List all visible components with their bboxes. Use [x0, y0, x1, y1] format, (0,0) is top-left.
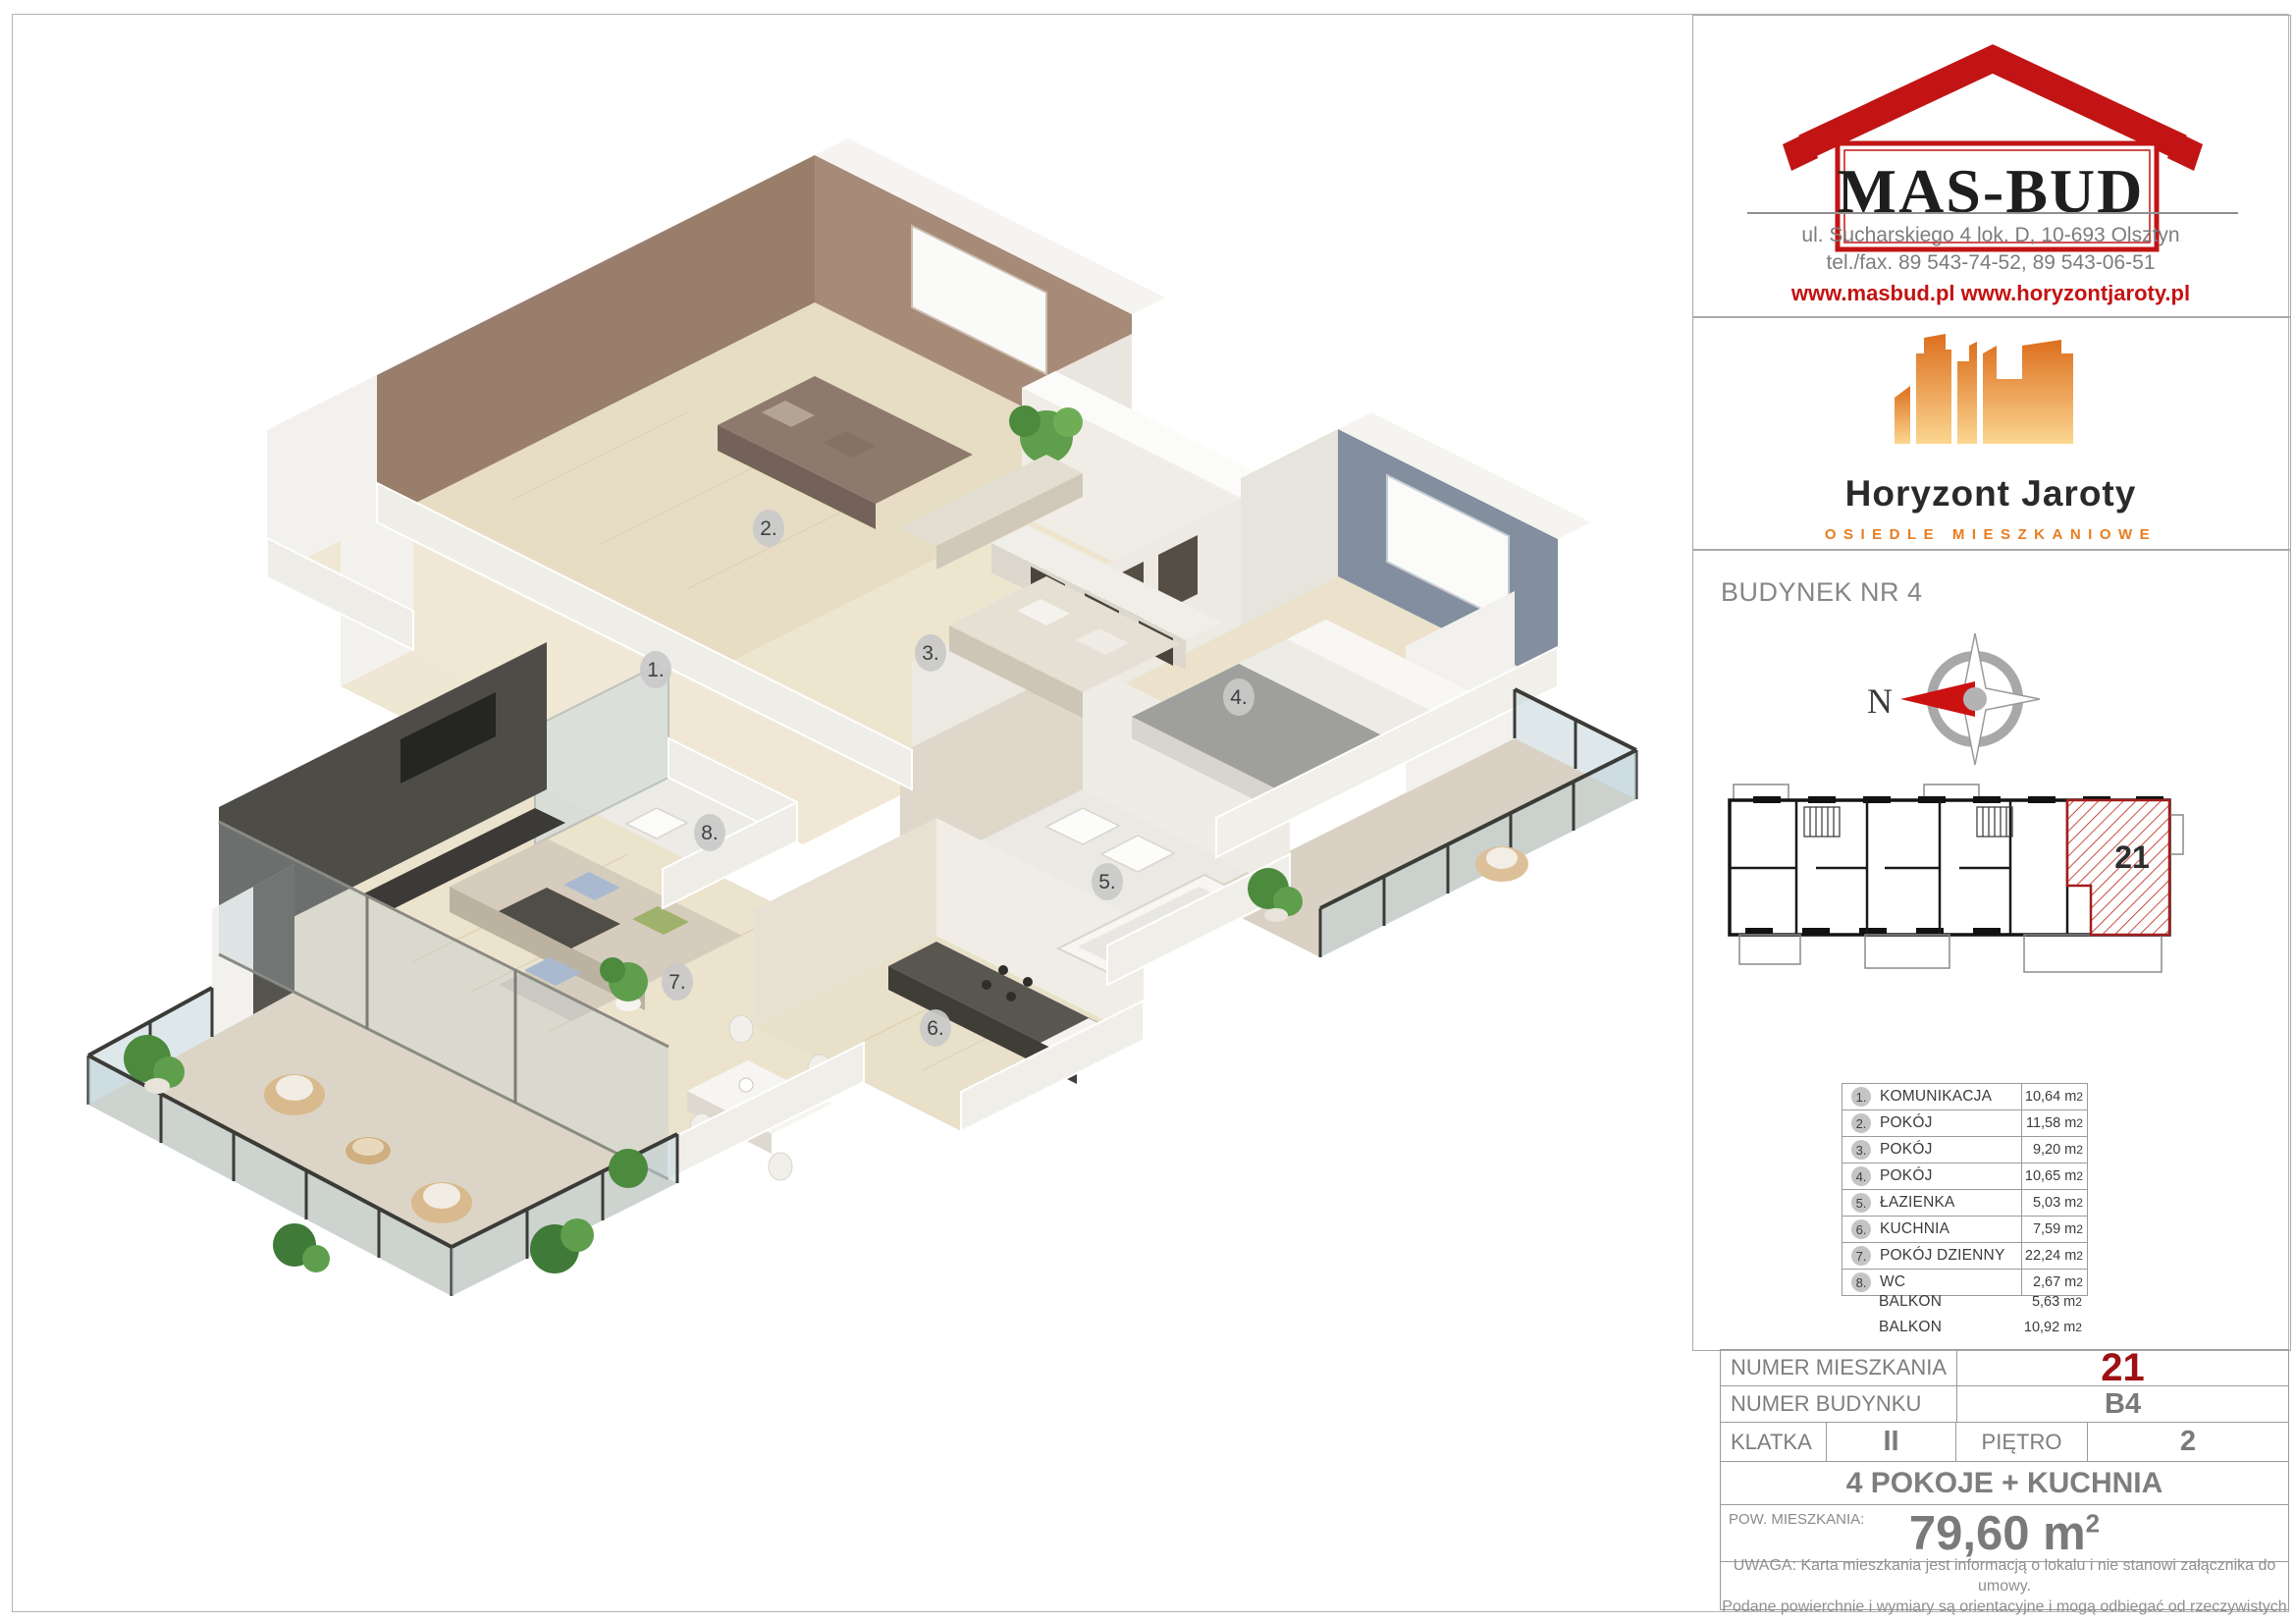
badge-6: 6.	[927, 1017, 944, 1040]
estate-subtitle: OSIEDLE MIESZKANIOWE	[1692, 526, 2289, 543]
balcony-name: BALKON	[1879, 1293, 2021, 1311]
room-row: 7.POKÓJ DZIENNY22,24 m2	[1842, 1243, 2087, 1270]
room-table: 1.KOMUNIKACJA10,64 m22.POKÓJ11,58 m23.PO…	[1842, 1083, 2088, 1296]
room-area: 5,03 m2	[2021, 1190, 2087, 1216]
layout-summary: 4 POKOJE + KUCHNIA	[1846, 1467, 2163, 1500]
badge-3: 3.	[922, 642, 939, 665]
staircase-label: KLATKA	[1721, 1430, 1812, 1455]
apartment-number-label: NUMER MIESZKANIA	[1721, 1355, 1947, 1380]
floor-label: PIĘTRO	[1982, 1430, 2062, 1455]
room-row: 4.POKÓJ10,65 m2	[1842, 1163, 2087, 1190]
room-row: 2.POKÓJ11,58 m2	[1842, 1110, 2087, 1137]
balcony-area: 10,92 m2	[2021, 1315, 2086, 1340]
room-name: ŁAZIENKA	[1880, 1194, 2021, 1212]
balcony-name: BALKON	[1879, 1319, 2021, 1336]
staircase-floor-row: KLATKA II PIĘTRO 2	[1720, 1422, 2289, 1462]
balcony-row: BALKON5,63 m2	[1842, 1289, 2086, 1315]
company-phone: tel./fax. 89 543-74-52, 89 543-06-51	[1692, 251, 2289, 275]
floor-value: 2	[2180, 1426, 2196, 1458]
estate-name: Horyzont Jaroty	[1692, 473, 2289, 514]
room-number-badge: 5.	[1842, 1193, 1880, 1213]
badge-4: 4.	[1230, 686, 1248, 709]
room-area: 10,65 m2	[2021, 1163, 2087, 1189]
balcony-row: BALKON10,92 m2	[1842, 1315, 2086, 1340]
room-name: POKÓJ	[1880, 1114, 2021, 1132]
room-name: POKÓJ	[1880, 1167, 2021, 1185]
area-label: POW. MIESZKANIA:	[1729, 1511, 1864, 1528]
badge-2: 2.	[760, 517, 777, 540]
company-websites[interactable]: www.masbud.pl www.horyzontjaroty.pl	[1692, 281, 2289, 306]
room-number-badge: 2.	[1842, 1113, 1880, 1133]
disclaimer-line2: Podane powierchnie i wymiary są orientac…	[1721, 1596, 2288, 1617]
room-row: 1.KOMUNIKACJA10,64 m2	[1842, 1084, 2087, 1110]
disclaimer-row: UWAGA: Karta mieszkania jest informacją …	[1720, 1561, 2289, 1610]
room-name: KUCHNIA	[1880, 1220, 2021, 1238]
apartment-number-row: NUMER MIESZKANIA 21	[1720, 1349, 2289, 1386]
room-name: KOMUNIKACJA	[1880, 1088, 2021, 1106]
room-row: 3.POKÓJ9,20 m2	[1842, 1137, 2087, 1163]
area-value: 79,60 m2	[1909, 1506, 2100, 1561]
room-area: 11,58 m2	[2021, 1110, 2087, 1136]
balcony-rows: BALKON5,63 m2BALKON10,92 m2	[1842, 1289, 2086, 1340]
room-number-badge: 6.	[1842, 1219, 1880, 1239]
room-name: POKÓJ DZIENNY	[1880, 1247, 2021, 1265]
room-number-badge: 3.	[1842, 1140, 1880, 1160]
room-number-badge: 1.	[1842, 1087, 1880, 1107]
room-row: 6.KUCHNIA7,59 m2	[1842, 1217, 2087, 1243]
company-address: ul. Sucharskiego 4 lok. D, 10-693 Olszty…	[1692, 224, 2289, 247]
staircase-value: II	[1883, 1426, 1898, 1458]
room-area: 22,24 m2	[2021, 1243, 2087, 1269]
room-area: 10,64 m2	[2021, 1084, 2087, 1109]
area-row: POW. MIESZKANIA: 79,60 m2	[1720, 1504, 2289, 1562]
badge-5: 5.	[1098, 871, 1116, 893]
room-number-badge: 7.	[1842, 1246, 1880, 1266]
badge-8: 8.	[701, 822, 719, 844]
room-row: 5.ŁAZIENKA5,03 m2	[1842, 1190, 2087, 1217]
building-number-value: B4	[2105, 1388, 2141, 1421]
balcony-area: 5,63 m2	[2021, 1289, 2086, 1315]
apartment-number-value: 21	[2101, 1346, 2145, 1390]
room-name: POKÓJ	[1880, 1141, 2021, 1159]
apartment-card: 1. 2. 3. 4. 5. 6. 7. 8. N	[0, 0, 2296, 1623]
building-header: BUDYNEK NR 4	[1721, 577, 1923, 608]
room-number-badge: 4.	[1842, 1166, 1880, 1186]
badge-7: 7.	[668, 971, 686, 994]
layout-summary-row: 4 POKOJE + KUCHNIA	[1720, 1461, 2289, 1505]
badge-1: 1.	[647, 659, 665, 681]
company-logo-text: MAS-BUD	[1692, 155, 2289, 228]
disclaimer-line1: UWAGA: Karta mieszkania jest informacją …	[1721, 1555, 2288, 1596]
building-number-label: NUMER BUDYNKU	[1721, 1391, 1921, 1417]
estate-box	[1692, 316, 2291, 551]
building-number-row: NUMER BUDYNKU B4	[1720, 1385, 2289, 1423]
divider	[1747, 212, 2238, 214]
room-area: 9,20 m2	[2021, 1137, 2087, 1163]
room-area: 7,59 m2	[2021, 1217, 2087, 1242]
